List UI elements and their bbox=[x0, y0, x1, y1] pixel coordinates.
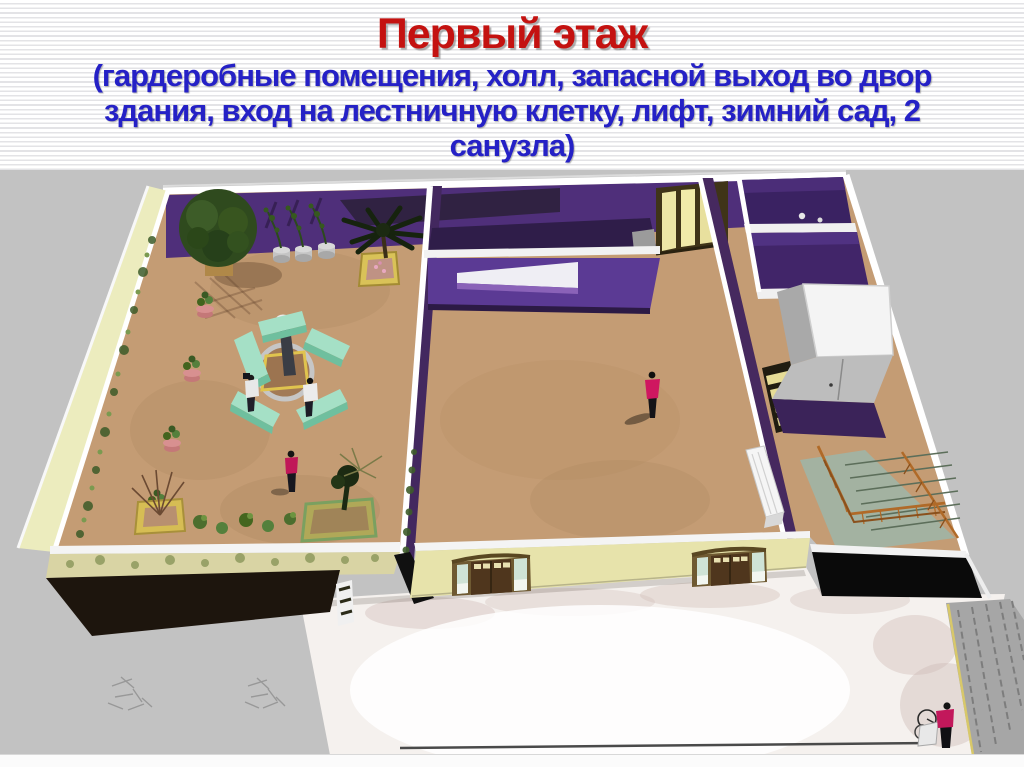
subtitle-line-2: здания, вход на лестничную клетку, лифт,… bbox=[12, 94, 1012, 129]
floor-plan-rendering bbox=[0, 170, 1024, 755]
entrance-porch bbox=[810, 544, 990, 598]
sink-icon bbox=[818, 218, 823, 223]
floor-plan-3d-view bbox=[0, 170, 1024, 755]
subtitle-line-3: санузла) bbox=[12, 129, 1012, 164]
slide-header: Первый этаж (гардеробные помещения, холл… bbox=[0, 0, 1024, 170]
entrance-door-1 bbox=[452, 555, 531, 596]
slide-subtitle: (гардеробные помещения, холл, запасной в… bbox=[12, 59, 1012, 163]
slide-title: Первый этаж bbox=[0, 0, 1024, 57]
reception-window-wall bbox=[424, 218, 660, 314]
garden-front-wall bbox=[46, 542, 400, 636]
slide-bottom-margin bbox=[0, 754, 1024, 767]
subtitle-line-1: (гардеробные помещения, холл, запасной в… bbox=[12, 59, 1012, 94]
entrance-door-2 bbox=[692, 549, 767, 587]
striped-corner-post bbox=[336, 580, 354, 626]
presentation-slide: Первый этаж (гардеробные помещения, холл… bbox=[0, 0, 1024, 767]
elevator-button bbox=[829, 383, 833, 387]
toilet-icon bbox=[799, 213, 805, 219]
